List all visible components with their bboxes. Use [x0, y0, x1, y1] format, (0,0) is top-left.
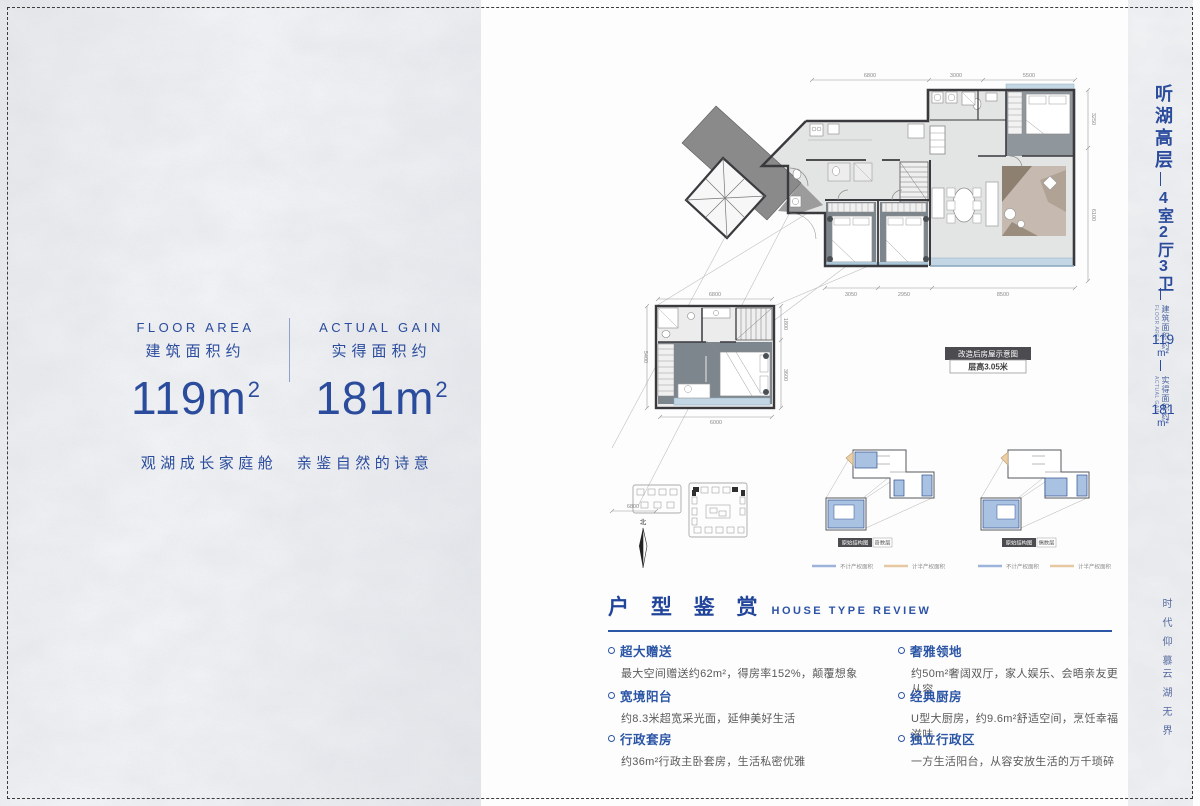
sidebar-divider: [1160, 172, 1161, 186]
svg-text:3050: 3050: [845, 292, 857, 298]
bullet-icon: [608, 735, 615, 742]
review-divider: [608, 630, 1112, 632]
svg-text:5500: 5500: [1023, 73, 1035, 79]
sidebar-slogan-top: 时代仰慕: [1158, 598, 1173, 674]
floor-plan-svg: 6800 3000 5500 3250 6100 3050 2950 8500: [600, 56, 1115, 588]
loft-balcony: [674, 398, 770, 405]
svg-text:5400: 5400: [642, 351, 648, 363]
svg-text:6800: 6800: [709, 292, 721, 298]
svg-text:层高3.05米: 层高3.05米: [967, 362, 1009, 372]
axon-diagram-even: 原始结构图 偶数层 不计产权面积 计半产权面积: [978, 450, 1112, 570]
svg-text:3600: 3600: [782, 369, 788, 381]
svg-text:原始结构图: 原始结构图: [842, 539, 869, 547]
review-item: 宽境阳台 约8.3米超宽采光面，延伸美好生活: [608, 686, 893, 726]
actual-gain-label-zh: 实得面积约: [294, 340, 469, 361]
svg-text:3250: 3250: [1090, 113, 1096, 125]
actual-gain-label-en: ACTUAL GAIN: [294, 320, 469, 335]
brochure-page: FLOOR AREA 建筑面积约 119m2 ACTUAL GAIN 实得面积约…: [0, 0, 1200, 806]
sidebar-divider: [1160, 288, 1161, 300]
renovation-badge: 改造后房屋示意图 层高3.05米: [945, 347, 1031, 373]
sidebar-divider: [1160, 360, 1161, 371]
sidebar-subtitle: 4室2厅3卫: [1151, 190, 1175, 292]
actual-gain-value: 181m2: [294, 371, 469, 425]
floor-area-value: 119m2: [108, 371, 283, 425]
review-title: 户 型 鉴 赏HOUSE TYPE REVIEW: [608, 591, 931, 621]
svg-text:1800: 1800: [782, 318, 788, 330]
svg-text:不计产权面积: 不计产权面积: [840, 562, 874, 570]
svg-text:偶数层: 偶数层: [1039, 539, 1055, 547]
review-title-en: HOUSE TYPE REVIEW: [772, 605, 932, 617]
loft-wardrobe: [658, 344, 674, 396]
bullet-icon: [608, 647, 615, 654]
svg-text:3000: 3000: [950, 73, 962, 79]
review-item: 独立行政区 一方生活阳台，从容安放生活的万千琐碎: [898, 729, 1123, 769]
bullet-icon: [898, 692, 905, 699]
master-wardrobe: [1008, 92, 1022, 134]
floor-area-label-en: FLOOR AREA: [108, 320, 283, 335]
sofa: [986, 182, 998, 226]
bullet-icon: [898, 735, 905, 742]
tagline: 观湖成长家庭舱 亲鉴自然的诗意: [102, 452, 472, 473]
review-item: 行政套房 约36m²行政主卧套房，生活私密优雅: [608, 729, 893, 769]
svg-text:北: 北: [640, 518, 647, 526]
actual-gain-block: ACTUAL GAIN 实得面积约 181m2: [294, 320, 469, 425]
dining-table: [953, 188, 975, 222]
svg-text:6100: 6100: [1090, 209, 1096, 221]
svg-text:奇数层: 奇数层: [875, 539, 891, 547]
svg-text:不计产权面积: 不计产权面积: [1006, 562, 1040, 570]
bullet-icon: [898, 647, 905, 654]
living-balcony: [930, 258, 1074, 266]
svg-text:计半产权面积: 计半产权面积: [912, 562, 946, 570]
svg-text:原始结构图: 原始结构图: [1006, 539, 1033, 547]
svg-text:计半产权面积: 计半产权面积: [1078, 562, 1112, 570]
review-title-zh: 户 型 鉴 赏: [608, 596, 766, 619]
sidebar-title: 听湖高层: [1150, 84, 1176, 172]
floor-area-label-zh: 建筑面积约: [108, 340, 283, 361]
axon-diagram-odd: 原始结构图 奇数层 不计产权面积 计半产权面积: [812, 450, 946, 570]
sidebar-floor-area-value: 119m²: [1150, 332, 1176, 359]
svg-text:6000: 6000: [710, 420, 722, 426]
north-arrow-icon: 北: [639, 518, 647, 568]
review-item: 超大赠送 最大空间赠送约62m²，得房率152%，颠覆想象: [608, 641, 893, 681]
floor-plan-area: 6800 3000 5500 3250 6100 3050 2950 8500: [600, 56, 1115, 588]
area-divider: [289, 318, 290, 382]
svg-text:2950: 2950: [898, 292, 910, 298]
svg-text:6800: 6800: [864, 73, 876, 79]
bullet-icon: [608, 692, 615, 699]
sidebar-actual-gain-value: 181m²: [1150, 402, 1176, 429]
svg-text:改造后房屋示意图: 改造后房屋示意图: [958, 349, 1018, 359]
floor-area-block: FLOOR AREA 建筑面积约 119m2: [108, 320, 283, 425]
sidebar-slogan-bottom: 云湖无界: [1158, 668, 1173, 744]
site-plan: [633, 483, 747, 537]
svg-text:8500: 8500: [997, 292, 1009, 298]
